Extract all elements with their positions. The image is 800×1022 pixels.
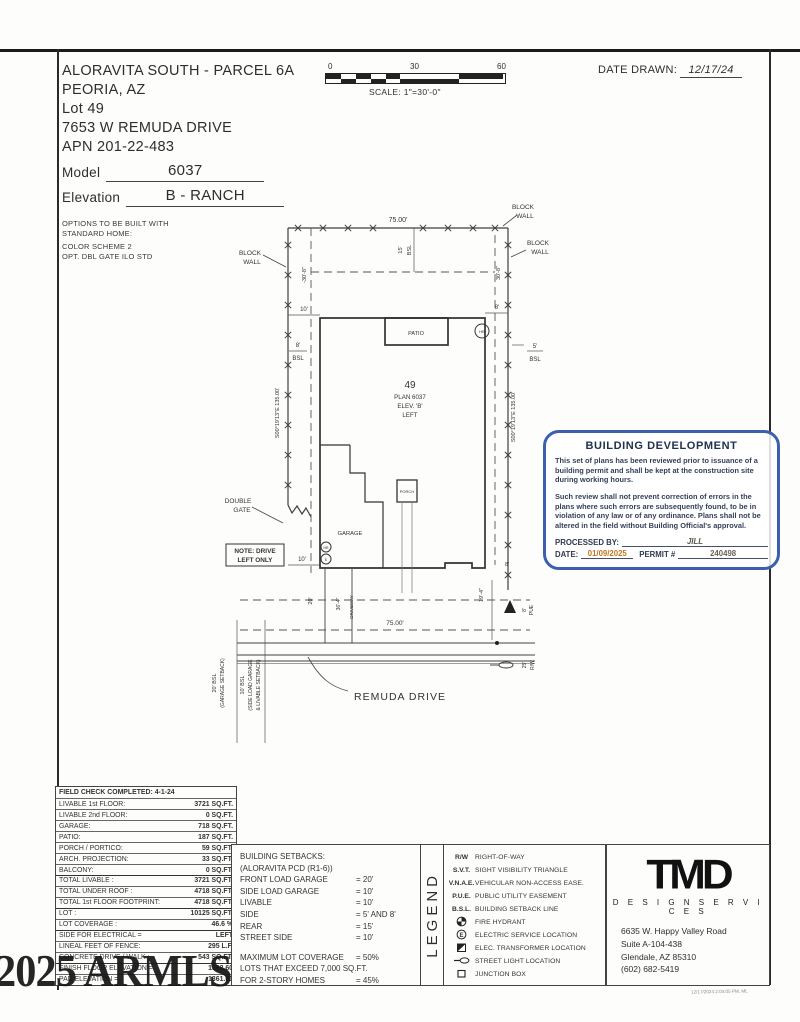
- table-row: ARCH. PROJECTION:33 SQ.FT.: [56, 853, 236, 864]
- transformer-icon: [448, 942, 475, 955]
- livable-setback-label-1: 10' BSL: [240, 675, 246, 694]
- block-wall-x-marks: [285, 225, 511, 578]
- table-row: LOT :10125 SQ.FT.: [56, 908, 236, 919]
- vnae-abbrev: V.N.A.E.: [448, 880, 475, 887]
- garage-label: GARAGE: [338, 531, 363, 537]
- row-value: 3721 SQ.FT.: [194, 801, 233, 808]
- block-wall-left-2: WALL: [243, 259, 261, 266]
- svt-abbrev: S.V.T.: [448, 867, 475, 874]
- legend-item: B.S.L.BUILDING SETBACK LINE: [448, 903, 602, 916]
- bearing-left: S00°19'13"E 135.00': [275, 388, 281, 438]
- bsl-right-label: BSL: [529, 357, 541, 363]
- row-value: 718 SQ.FT.: [198, 823, 233, 830]
- project-name: ALORAVITA SOUTH - PARCEL 6A: [62, 62, 312, 81]
- fire-hydrant-icon: [448, 916, 475, 929]
- setback-row: REAR= 15': [240, 921, 412, 933]
- row-label: BALCONY:: [59, 867, 93, 874]
- row-value: 4718 SQ.FT.: [194, 899, 233, 906]
- garage-setback-label-1: 20' BSL: [212, 673, 218, 692]
- bsl-left-label: BSL: [292, 356, 304, 362]
- processed-by-label: PROCESSED BY:: [555, 538, 619, 547]
- legend-list: R/WRIGHT-OF-WAY S.V.T.SIGHT VISIBILITY T…: [443, 844, 606, 986]
- scale-bar-graphic: [325, 73, 506, 84]
- date-drawn: DATE DRAWN: 12/17/24: [598, 64, 742, 76]
- block-wall-top-1: BLOCK: [512, 204, 535, 211]
- street-name-label: REMUDA DRIVE: [354, 691, 446, 703]
- row-label: LIVABLE 1st FLOOR:: [59, 801, 125, 808]
- table-row: TOTAL UNDER ROOF :4718 SQ.FT.: [56, 886, 236, 897]
- building-setbacks-box: BUILDING SETBACKS: (ALORAVITA PCD (R1-6)…: [231, 844, 421, 986]
- table-row: TOTAL 1st FLOOR FOOTPRINT:4718 SQ.FT.: [56, 897, 236, 908]
- legend-item: FIRE HYDRANT: [448, 916, 602, 929]
- row-value: 0 SQ.FT.: [206, 867, 233, 874]
- firm-phone: (602) 682-5419: [621, 963, 769, 976]
- project-city: PEORIA, AZ: [62, 81, 312, 100]
- firm-address-line2: Suite A-104-438: [621, 938, 769, 951]
- rw-abbrev: R/W: [448, 854, 475, 861]
- orientation-label: LEFT: [402, 412, 417, 419]
- building-development-stamp: BUILDING DEVELOPMENT This set of plans h…: [543, 430, 780, 570]
- setback-row: SIDE= 5' AND 8': [240, 909, 412, 921]
- table-row: SIDE FOR ELECTRICAL =LEFT: [56, 930, 236, 941]
- junction-box-icon: [448, 968, 475, 981]
- block-wall-right-2: WALL: [531, 249, 549, 256]
- dim-10-top: 10': [300, 307, 308, 313]
- scale-ticks: 0 30 60: [325, 62, 515, 72]
- garage-setback-label-2: (GARAGE SETBACK): [220, 658, 226, 708]
- dim-30-8-right: 30'-8": [496, 266, 502, 280]
- max-coverage-note: LOTS THAT EXCEED 7,000 SQ.FT.: [240, 963, 412, 975]
- row-label: TOTAL UNDER ROOF :: [59, 888, 132, 895]
- legend-item: S.V.T.SIGHT VISIBILITY TRIANGLE: [448, 864, 602, 877]
- scale-bar: 0 30 60 SCALE: 1"=30'-0": [325, 62, 515, 97]
- dim-8-top-right: 8': [495, 305, 499, 311]
- legend-item: V.N.A.E.VEHICULAR NON-ACCESS EASE.: [448, 877, 602, 890]
- plan-labels: 75.00' 15' BSL -30'-8" 30'-8" BLOCK WALL…: [212, 204, 550, 711]
- model-row: Model 6037: [62, 161, 312, 182]
- design-firm-box: TMD D E S I G N S E R V I C E S 6635 W. …: [606, 844, 770, 986]
- electric-service-icon: E: [448, 929, 475, 942]
- dim-30-8-left: -30'-8": [302, 267, 308, 283]
- date-drawn-label: DATE DRAWN:: [598, 64, 677, 76]
- double-gate-leader: [252, 507, 283, 523]
- dim-20-driveway: 20': [308, 597, 314, 604]
- scale-tick-60: 60: [497, 62, 506, 71]
- dim-8-bsl-left: 8': [296, 343, 300, 349]
- double-gate-label-2: GATE: [233, 507, 251, 514]
- svt-triangle-symbol: [504, 600, 516, 613]
- dim-75-top: 75.00': [389, 217, 408, 224]
- elevation-letter-label: ELEV. 'B': [397, 403, 422, 410]
- row-value: 0 SQ.FT.: [206, 812, 233, 819]
- table-row: LOT COVERAGE :46.6 %: [56, 919, 236, 930]
- two-story-row: FOR 2-STORY HOMES= 45%: [240, 975, 412, 987]
- stamp-title: BUILDING DEVELOPMENT: [555, 440, 768, 452]
- dim-10-bottom: 10': [298, 557, 306, 563]
- table-row: TOTAL LIVABLE :3721 SQ.FT.: [56, 875, 236, 886]
- dim-5-bsl-right: 5': [533, 344, 537, 350]
- site-address: 7653 W REMUDA DRIVE: [62, 119, 312, 138]
- plan-number-label: PLAN 6037: [394, 394, 426, 401]
- table-row: LIVABLE 1st FLOOR:3721 SQ.FT.: [56, 798, 236, 809]
- rw-label: R/W: [530, 660, 536, 670]
- date-drawn-value: 12/17/24: [680, 64, 741, 78]
- armls-watermark: 2025 ARMLS: [0, 944, 232, 997]
- table-row: LIVABLE 2nd FLOOR:0 SQ.FT.: [56, 809, 236, 820]
- block-wall-left-1: BLOCK: [239, 250, 262, 257]
- scale-tick-0: 0: [328, 62, 332, 71]
- legend-title: LEGEND: [424, 872, 441, 958]
- row-label: TOTAL 1st FLOOR FOOTPRINT:: [59, 899, 160, 906]
- drive-note-line2: LEFT ONLY: [238, 557, 274, 564]
- row-value: 33 SQ.FT.: [202, 856, 233, 863]
- permit-value: 240498: [678, 549, 768, 559]
- table-row: GARAGE:718 SQ.FT.: [56, 820, 236, 831]
- row-label: PATIO:: [59, 834, 81, 841]
- row-value: 59 SQ.FT.: [202, 845, 233, 852]
- plot-plan-sheet: ALORAVITA SOUTH - PARCEL 6A PEORIA, AZ L…: [0, 0, 800, 1022]
- stamp-processed-row: PROCESSED BY: JILL: [555, 537, 768, 547]
- model-label: Model: [62, 163, 100, 182]
- row-label: LOT COVERAGE :: [59, 921, 117, 928]
- legend-item: P.U.E.PUBLIC UTILITY EASEMENT: [448, 890, 602, 903]
- field-check-title: FIELD CHECK COMPLETED: 4-1-24: [59, 789, 175, 796]
- row-label: TOTAL LIVABLE :: [59, 877, 114, 884]
- legend-title-strip: LEGEND: [420, 844, 444, 986]
- hose-bib-text: HB: [479, 329, 485, 334]
- row-value: 10125 SQ.FT.: [190, 910, 233, 917]
- dim-25-rw: 25': [522, 662, 528, 669]
- lot-number: Lot 49: [62, 100, 312, 119]
- legend-item: STREET LIGHT LOCATION: [448, 955, 602, 968]
- setback-row: FRONT LOAD GARAGE= 20': [240, 874, 412, 886]
- firm-address-line3: Glendale, AZ 85310: [621, 951, 769, 964]
- street-light-pole-symbol: [495, 641, 499, 645]
- driveway-label: DRIVEWAY: [349, 595, 354, 619]
- stamp-date-value: 01/09/2025: [581, 549, 633, 559]
- patio-label: PATIO: [408, 331, 424, 337]
- row-value: 187 SQ.FT.: [198, 834, 233, 841]
- dim-19-4: 19'-4": [479, 588, 485, 602]
- livable-setback-label-3: & LIVABLE SETBACK): [256, 659, 262, 710]
- stamp-paragraph-2: Such review shall not prevent correction…: [555, 492, 768, 531]
- row-value: 3721 SQ.FT.: [194, 877, 233, 884]
- apn: APN 201-22-483: [62, 138, 312, 157]
- elevation-label: Elevation: [62, 188, 120, 207]
- block-wall-top-2: WALL: [516, 213, 534, 220]
- max-coverage-row: MAXIMUM LOT COVERAGE= 50%: [240, 952, 412, 964]
- livable-setback-label-2: (SIDE LOAD GARAGE: [248, 659, 254, 711]
- row-label: LIVABLE 2nd FLOOR:: [59, 812, 127, 819]
- row-label: ARCH. PROJECTION:: [59, 856, 129, 863]
- firm-tagline: D E S I G N S E R V I C E S: [607, 898, 769, 916]
- block-wall-right-1: BLOCK: [527, 240, 550, 247]
- dim-15: 15': [398, 246, 404, 253]
- svg-text:E: E: [459, 933, 463, 939]
- setback-row: LIVABLE= 10': [240, 897, 412, 909]
- permit-label: PERMIT #: [639, 550, 675, 559]
- setback-row: STREET SIDE= 10': [240, 932, 412, 944]
- dim-75-bottom: 75.00': [386, 620, 404, 627]
- pue-abbrev: P.U.E.: [448, 893, 475, 900]
- stamp-date-row: DATE: 01/09/2025 PERMIT # 240498: [555, 549, 768, 559]
- double-gate-label-1: DOUBLE: [225, 498, 252, 505]
- table-row: PORCH / PORTICO:59 SQ.FT.: [56, 842, 236, 853]
- scale-tick-30: 30: [410, 62, 419, 71]
- dim-8-pue: 8': [522, 608, 528, 612]
- building-setback-lines: [240, 228, 530, 630]
- e-circle-text: E: [325, 558, 328, 562]
- bearing-right: S00°19'13"E 135.00': [511, 392, 517, 442]
- setbacks-subtitle: (ALORAVITA PCD (R1-6)): [240, 863, 412, 875]
- table-row: PATIO:187 SQ.FT.: [56, 831, 236, 842]
- firm-logo: TMD: [607, 854, 769, 896]
- model-value: 6037: [106, 161, 264, 182]
- walkway-lines: [402, 502, 412, 593]
- stamp-date-label: DATE:: [555, 550, 578, 559]
- street-light-symbol: [499, 662, 513, 668]
- drive-note-line1: NOTE: DRIVE: [234, 548, 276, 555]
- row-label: GARAGE:: [59, 823, 90, 830]
- porch-label: PORCH: [400, 489, 415, 494]
- street-lines: [237, 643, 535, 691]
- table-row: BALCONY:0 SQ.FT.: [56, 864, 236, 875]
- hb-circle-text: HB: [324, 546, 330, 550]
- setbacks-title: BUILDING SETBACKS:: [240, 851, 412, 863]
- bsl-abbrev: B.S.L.: [448, 906, 475, 913]
- lot-number-label: 49: [404, 380, 416, 391]
- row-label: SIDE FOR ELECTRICAL =: [59, 932, 142, 939]
- dim-36-4: 36'-4": [336, 597, 342, 610]
- scan-timestamp: 12/17/2024 2:04:05 PM, ML: [691, 989, 748, 995]
- row-value: 46.6 %: [212, 921, 233, 928]
- firm-address-line1: 6635 W. Happy Valley Road: [621, 925, 769, 938]
- pue-label: PUE: [529, 604, 535, 615]
- dim-8-right-mid: 8': [505, 562, 509, 568]
- processed-by-value: JILL: [622, 537, 768, 547]
- row-label: LOT :: [59, 910, 76, 917]
- legend-item: R/WRIGHT-OF-WAY: [448, 851, 602, 864]
- legend-item: ELEC. TRANSFORMER LOCATION: [448, 942, 602, 955]
- scale-text: SCALE: 1"=30'-0": [369, 87, 515, 97]
- legend-item: E ELECTRIC SERVICE LOCATION: [448, 929, 602, 942]
- street-light-icon: [448, 955, 475, 968]
- row-label: PORCH / PORTICO:: [59, 845, 123, 852]
- legend-item: JUNCTION BOX: [448, 968, 602, 981]
- sheet-border-top: [0, 49, 800, 52]
- stamp-paragraph-1: This set of plans has been reviewed prio…: [555, 456, 768, 485]
- firm-address: 6635 W. Happy Valley Road Suite A-104-43…: [621, 925, 769, 976]
- site-plan-drawing: 75.00' 15' BSL -30'-8" 30'-8" BLOCK WALL…: [190, 195, 560, 760]
- setback-row: SIDE LOAD GARAGE= 10': [240, 886, 412, 898]
- row-value: 4718 SQ.FT.: [194, 888, 233, 895]
- bsl-15-label: BSL: [407, 245, 413, 255]
